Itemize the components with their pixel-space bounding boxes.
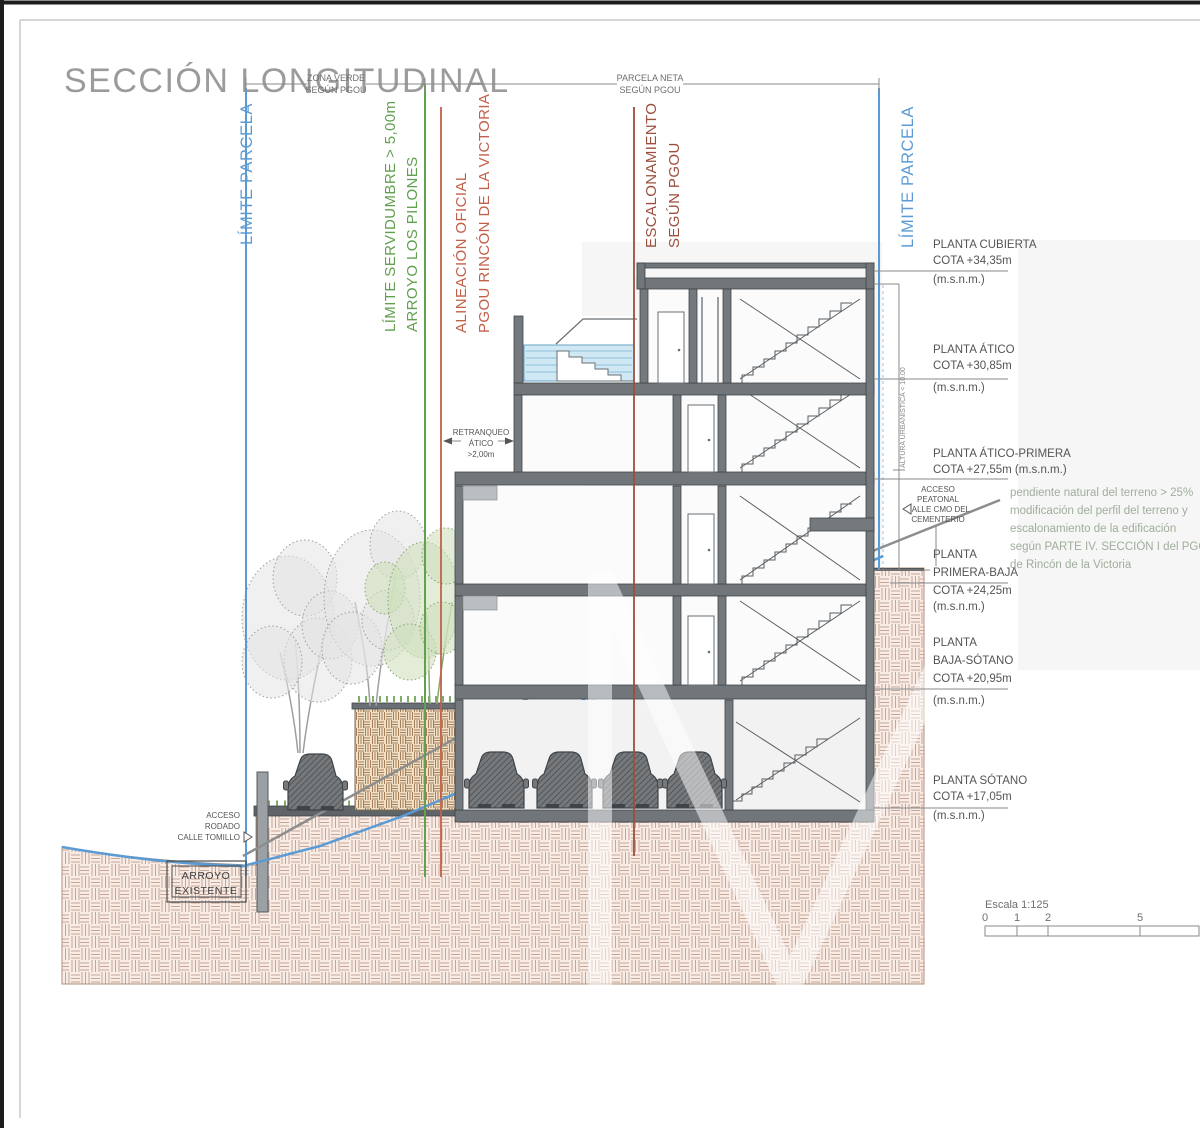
svg-text:>2,00m: >2,00m [468,450,495,459]
svg-text:0: 0 [982,912,988,924]
svg-text:CALLE CMO DEL: CALLE CMO DEL [906,505,971,514]
svg-text:ACCESO: ACCESO [206,811,240,820]
svg-text:PLANTA SÓTANO: PLANTA SÓTANO [933,774,1027,787]
entry-landing [810,518,874,531]
svg-text:de Rincón de la Victoria: de Rincón de la Victoria [1010,559,1132,571]
svg-text:1: 1 [1014,912,1020,924]
svg-text:modificación del perfil del te: modificación del perfil del terreno y [1010,505,1188,517]
svg-text:PEATONAL: PEATONAL [917,495,959,504]
zona-verde-label-2: SEGÚN PGOU [305,85,366,95]
svg-text:5: 5 [1137,912,1143,924]
scale-bar: Escala 1:125 0 1 2 5 [982,899,1199,936]
svg-text:COTA +20,95m: COTA +20,95m [933,673,1012,685]
scale-label: Escala 1:125 [985,899,1049,911]
alineacion-label-2: PGOU RINCÓN DE LA VICTORIA [476,94,493,333]
svg-text:ARROYO: ARROYO [182,870,231,882]
svg-text:PLANTA: PLANTA [933,637,977,649]
retranqueo-annotation: RETRANQUEO ÁTICO >2,00m [443,428,514,459]
svg-text:COTA +27,55m (m.s.n.m.): COTA +27,55m (m.s.n.m.) [933,464,1067,476]
svg-text:(m.s.n.m.): (m.s.n.m.) [933,695,985,707]
svg-text:PLANTA ÁTICO-PRIMERA: PLANTA ÁTICO-PRIMERA [933,447,1071,460]
svg-text:ACCESO: ACCESO [921,485,955,494]
section-drawing: SECCIÓN LONGITUDINAL arroyo entubado [0,0,1200,1145]
svg-text:pendiente natural del terreno: pendiente natural del terreno > 25% [1010,487,1193,499]
svg-text:COTA +24,25m: COTA +24,25m [933,585,1012,597]
escalonamiento-label-1: ESCALONAMIENTO [643,103,660,248]
svg-text:RODADO: RODADO [205,822,240,831]
road-access-arrow [244,832,252,842]
svg-text:(m.s.n.m.): (m.s.n.m.) [933,810,985,822]
level-sotano: PLANTA SÓTANO COTA +17,05m (m.s.n.m.) [933,774,1027,822]
servidumbre-label-2: ARROYO LOS PILONES [404,156,421,332]
limite-parcela-right-label: LÍMITE PARCELA [898,106,917,248]
svg-text:PRIMERA-BAJA: PRIMERA-BAJA [933,567,1018,579]
parcela-neta-label-2: SEGÚN PGOU [619,85,680,95]
svg-text:(m.s.n.m.): (m.s.n.m.) [933,382,985,394]
svg-text:COTA +17,05m: COTA +17,05m [933,791,1012,803]
alineacion-label-1: ALINEACIÓN OFICIAL [453,172,470,333]
svg-text:2: 2 [1045,912,1051,924]
svg-text:PLANTA CUBIERTA: PLANTA CUBIERTA [933,239,1037,251]
page-title: SECCIÓN LONGITUDINAL [64,62,510,100]
svg-text:CEMENTERIO: CEMENTERIO [911,515,964,524]
svg-text:COTA +30,85m: COTA +30,85m [933,360,1012,372]
acceso-rodado-annotation: ACCESO RODADO CALLE TOMILLO [178,811,252,842]
parcela-neta-label-1: PARCELA NETA [617,73,684,83]
svg-text:CALLE TOMILLO: CALLE TOMILLO [178,833,240,842]
escalonamiento-label-2: SEGÚN PGOU [666,142,683,248]
servidumbre-label-1: LÍMITE SERVIDUMBRE > 5,00m [382,101,399,332]
zona-verde-label-1: ZONA VERDE [307,73,365,83]
svg-text:BAJA-SÓTANO: BAJA-SÓTANO [933,654,1013,667]
level-atico: PLANTA ÁTICO COTA +30,85m (m.s.n.m.) [933,343,1015,394]
limite-parcela-left-label: LÍMITE PARCELA [237,103,256,245]
planter-wall [352,699,458,810]
svg-text:EXISTENTE: EXISTENTE [175,885,238,897]
svg-text:escalonamiento de la edificaci: escalonamiento de la edificación [1010,523,1176,535]
svg-text:RETRANQUEO: RETRANQUEO [453,428,509,437]
svg-text:según PARTE IV. SECCIÓN I del: según PARTE IV. SECCIÓN I del PGOU [1010,540,1200,553]
svg-text:COTA +34,35m: COTA +34,35m [933,255,1012,267]
svg-text:PLANTA: PLANTA [933,549,977,561]
svg-text:(m.s.n.m.): (m.s.n.m.) [933,601,985,613]
street-car [284,754,348,810]
svg-text:ÁTICO: ÁTICO [469,439,493,448]
altura-urbanistica-label: ALTURA URBANÍSTICA < 10.00 [898,367,907,468]
svg-text:(m.s.n.m.): (m.s.n.m.) [933,274,985,286]
drawing-sheet: SECCIÓN LONGITUDINAL arroyo entubado [0,0,1200,1145]
svg-text:PLANTA ÁTICO: PLANTA ÁTICO [933,343,1015,356]
